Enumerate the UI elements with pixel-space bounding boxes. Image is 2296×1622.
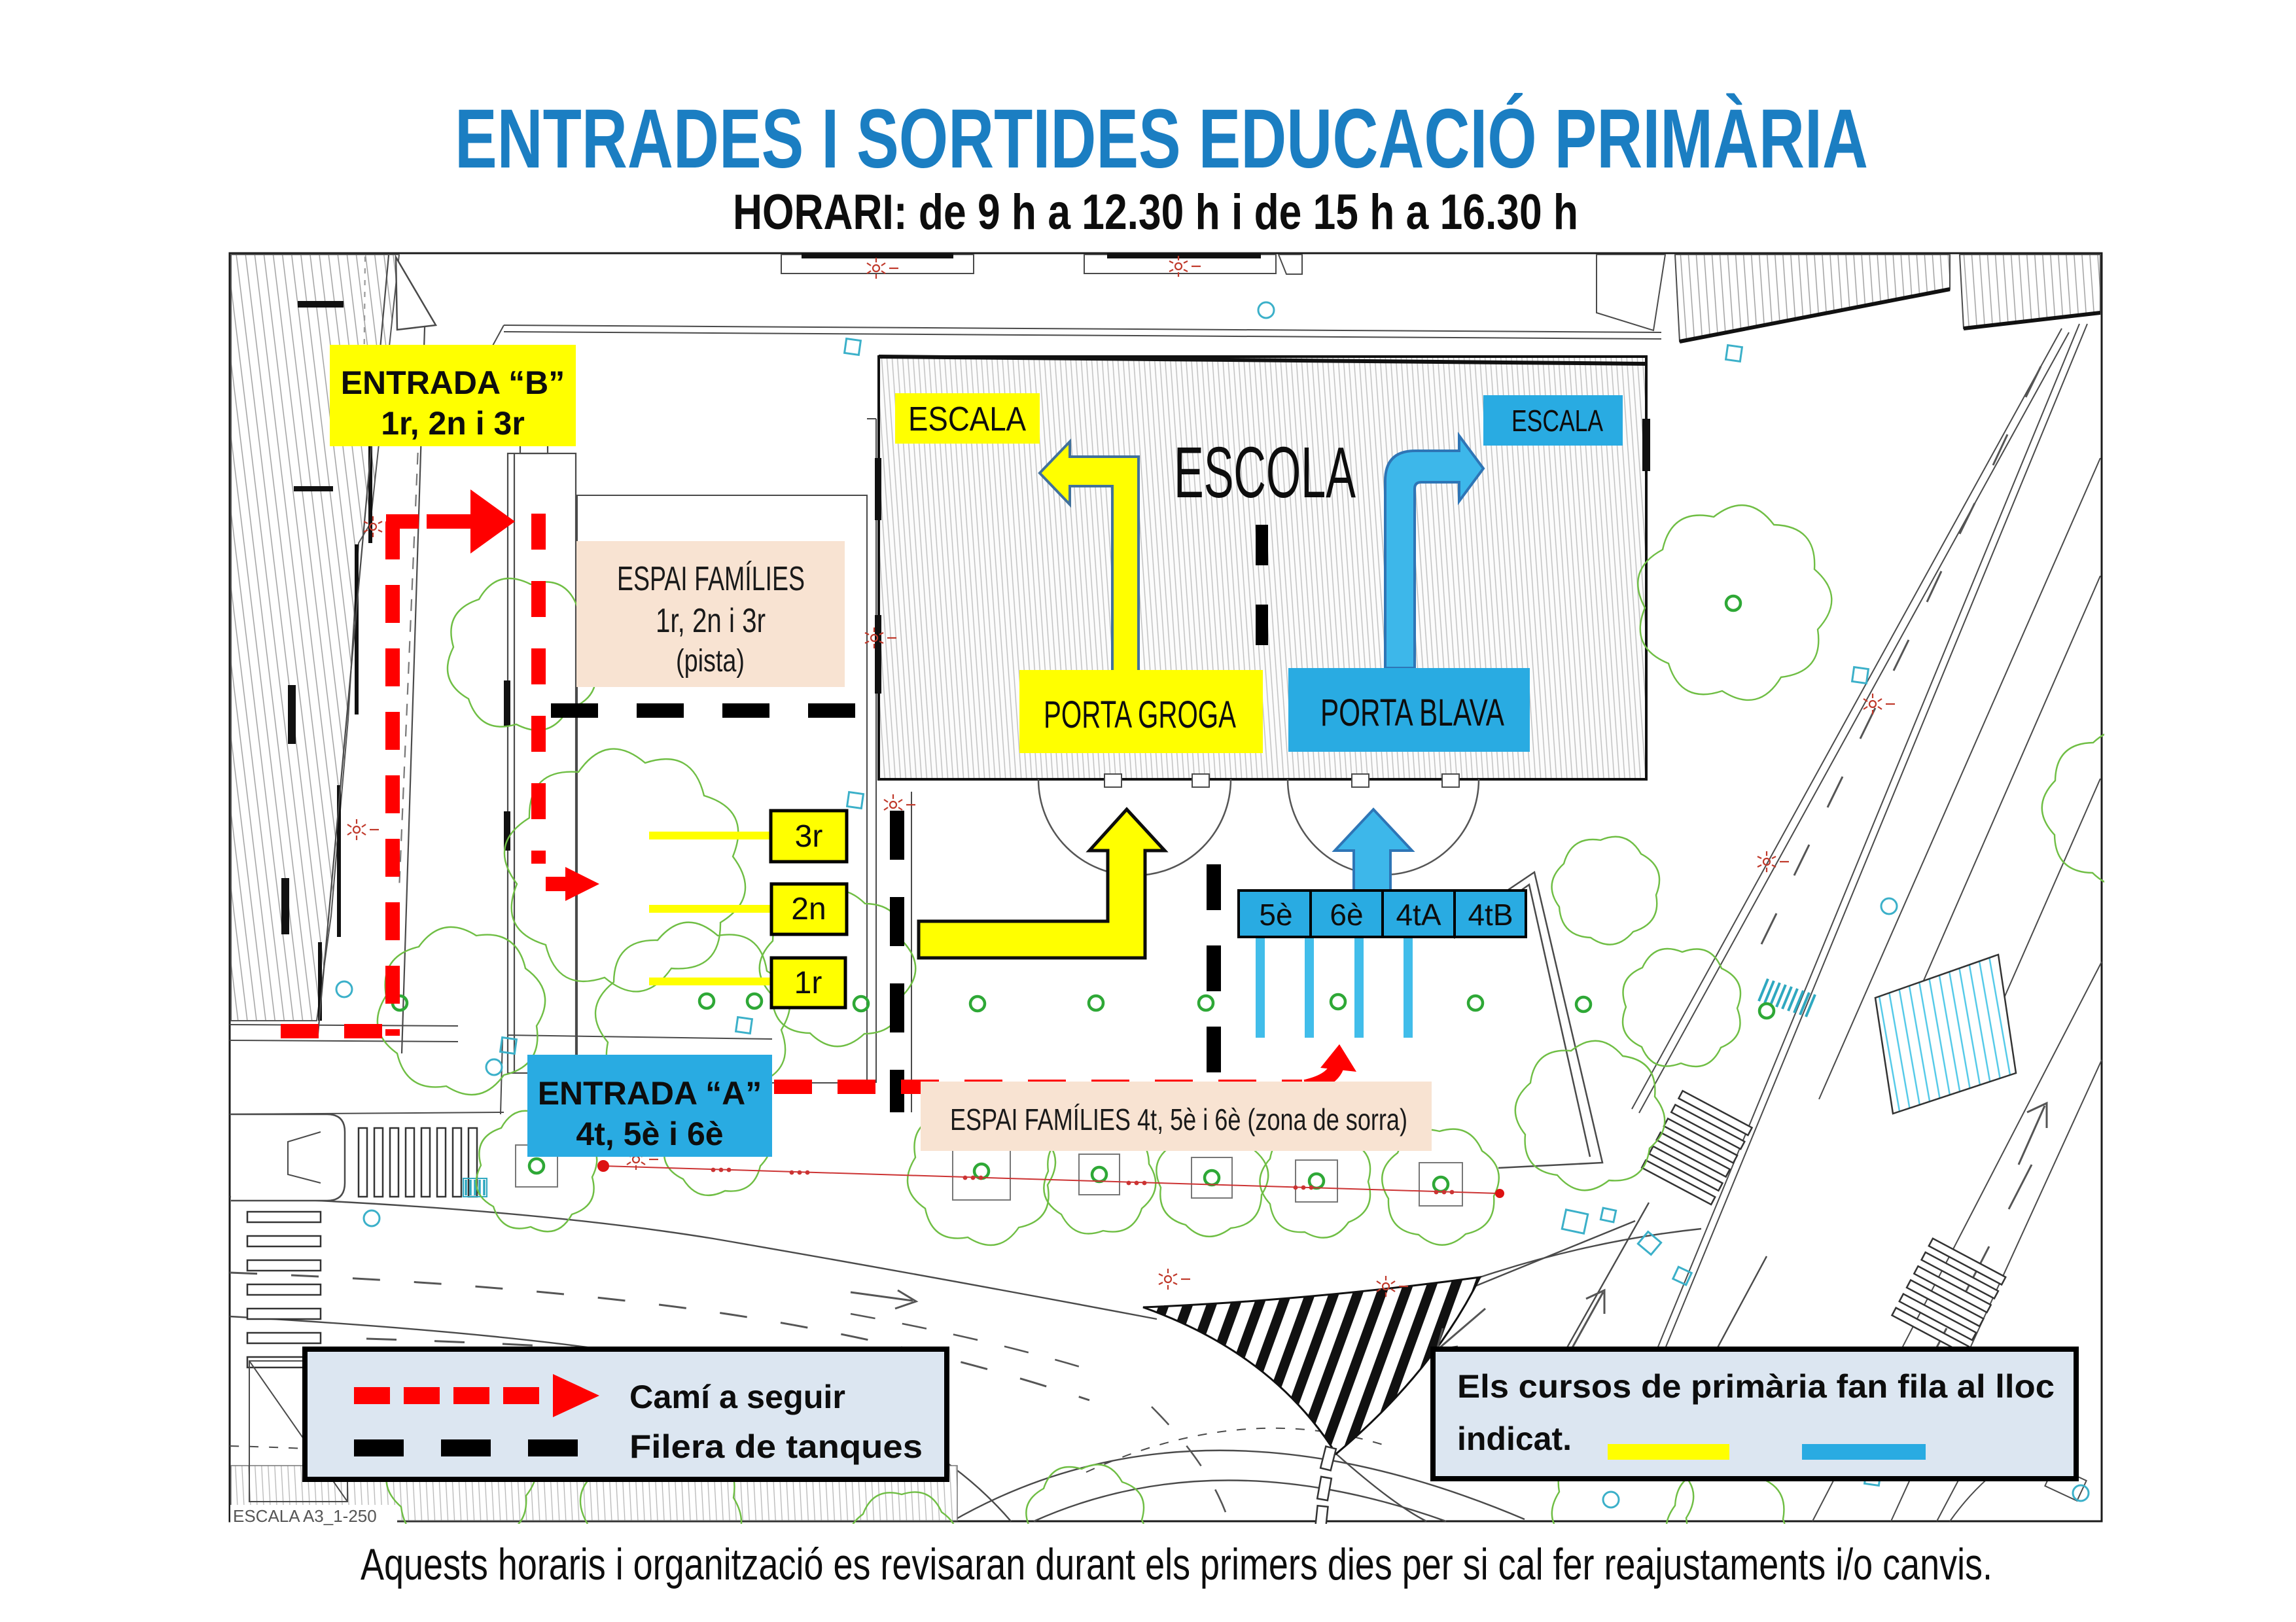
svg-text:1r, 2n i 3r: 1r, 2n i 3r [381, 405, 525, 442]
svg-text:Els cursos de primària fan fil: Els cursos de primària fan fila al lloc [1457, 1368, 2055, 1405]
svg-text:(pista): (pista) [676, 644, 745, 679]
svg-text:ESPAI FAMÍLIES: ESPAI FAMÍLIES [617, 560, 805, 598]
svg-text:ESPAI FAMÍLIES 4t, 5è i 6è (zo: ESPAI FAMÍLIES 4t, 5è i 6è (zona de sorr… [950, 1102, 1407, 1137]
svg-text:ESCALA: ESCALA [908, 400, 1026, 438]
svg-text:ENTRADA “B”: ENTRADA “B” [341, 364, 565, 401]
svg-text:Filera de tanques: Filera de tanques [629, 1428, 923, 1465]
svg-text:ESCALA: ESCALA [1511, 404, 1603, 438]
svg-text:PORTA BLAVA: PORTA BLAVA [1320, 692, 1504, 734]
svg-text:indicat.: indicat. [1457, 1420, 1572, 1457]
svg-text:3r: 3r [795, 819, 823, 854]
svg-text:Aquests horaris i organització: Aquests horaris i organització es revisa… [361, 1540, 1992, 1589]
svg-text:4tA: 4tA [1396, 898, 1441, 932]
svg-text:1r: 1r [794, 966, 822, 1000]
svg-text:5è: 5è [1259, 898, 1292, 932]
svg-text:ESCOLA: ESCOLA [1174, 432, 1356, 513]
svg-text:ENTRADES I SORTIDES EDUCACIÓ P: ENTRADES I SORTIDES EDUCACIÓ PRIMÀRIA [455, 92, 1868, 186]
svg-text:2n: 2n [791, 892, 826, 926]
svg-text:HORARI: de 9 h a 12.30 h i de: HORARI: de 9 h a 12.30 h i de 15 h a 16.… [733, 185, 1578, 240]
svg-text:PORTA GROGA: PORTA GROGA [1044, 694, 1236, 736]
svg-text:ENTRADA “A”: ENTRADA “A” [538, 1075, 762, 1112]
svg-text:4t, 5è i 6è: 4t, 5è i 6è [576, 1116, 723, 1152]
svg-text:1r, 2n i 3r: 1r, 2n i 3r [656, 602, 766, 640]
svg-text:Camí a seguir: Camí a seguir [629, 1379, 845, 1415]
svg-text:6è: 6è [1330, 898, 1363, 932]
svg-text:4tB: 4tB [1468, 898, 1513, 932]
svg-text:ESCALA A3_1-250: ESCALA A3_1-250 [233, 1506, 377, 1526]
